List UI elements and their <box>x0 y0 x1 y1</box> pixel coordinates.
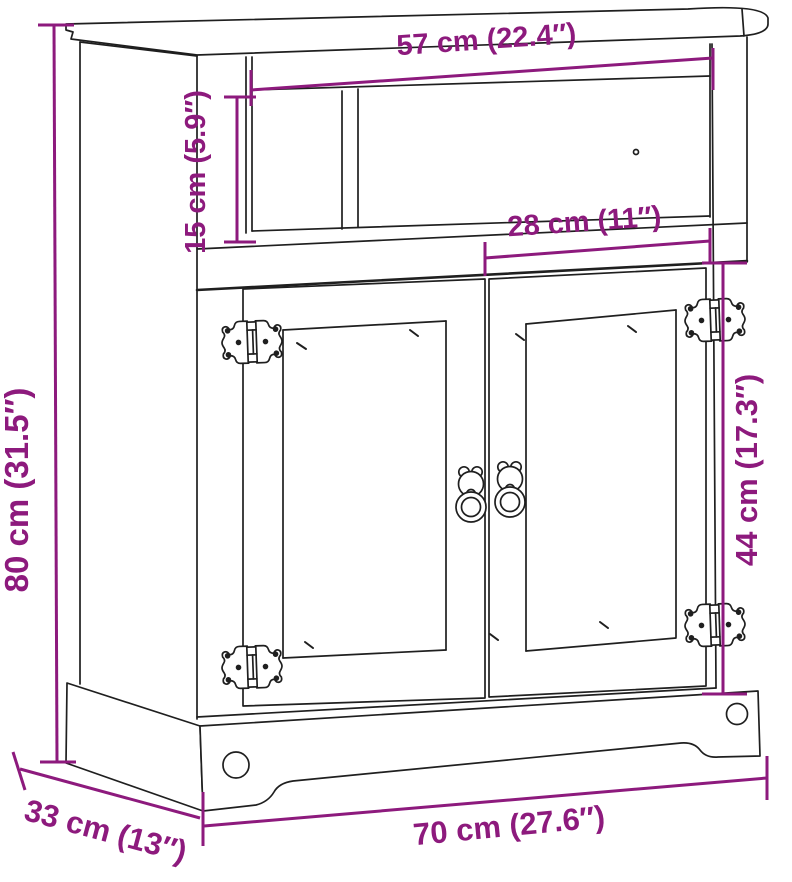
plinth-front-face <box>200 691 760 811</box>
dim-niche-height: 15 cm (5.9″) <box>180 90 256 254</box>
dim-overall-height: 80 cm (31.5″) <box>0 25 76 762</box>
dim-label-door-height: 44 cm (17.3″) <box>729 374 764 566</box>
plinth-base <box>66 683 760 811</box>
dim-label-niche-height: 15 cm (5.9″) <box>180 90 212 254</box>
dim-label-overall-height: 80 cm (31.5″) <box>0 388 35 593</box>
open-shelf <box>197 44 747 290</box>
plinth-side-face <box>66 683 203 811</box>
shelf-back-top-edge <box>252 76 710 90</box>
front-right-edge <box>712 44 716 688</box>
dim-label-overall-depth: 33 cm (13″) <box>21 792 191 869</box>
peg-hole <box>634 150 639 155</box>
cabinet-drawing: 57 cm (22.4″) 15 cm (5.9″) 28 cm (11″) 8… <box>0 0 792 882</box>
dimension-diagram: 57 cm (22.4″) 15 cm (5.9″) 28 cm (11″) 8… <box>0 0 792 882</box>
dim-label-door-width: 28 cm (11″) <box>506 201 662 244</box>
